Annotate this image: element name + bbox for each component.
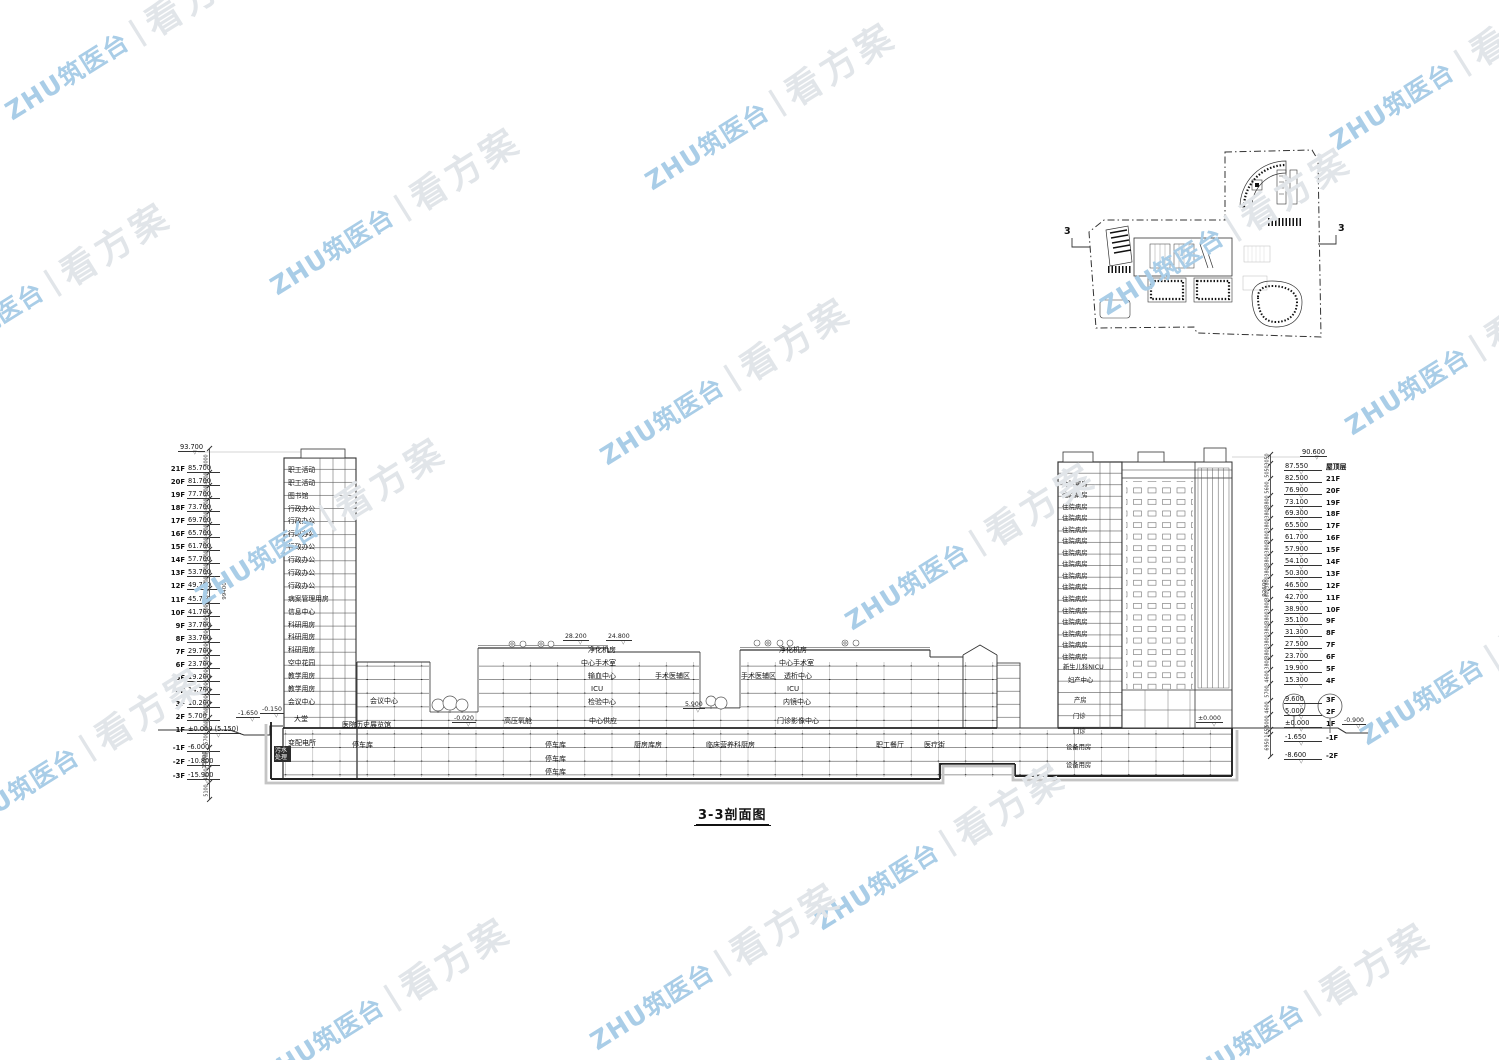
dimension-value: 4000 <box>205 512 210 524</box>
room-label: 住院病房 <box>1062 591 1088 603</box>
room-label: 门诊 <box>1073 728 1086 736</box>
floor-label: 5F <box>1326 666 1335 673</box>
dimension-segment: 4000 <box>205 512 214 525</box>
room-name: 住院病房 <box>1062 573 1088 580</box>
dimension-segment: 4800 <box>205 768 214 783</box>
floor-label: 18F <box>163 505 185 512</box>
level-row: 5.0002F <box>1284 704 1346 716</box>
floor-label: -3F <box>163 773 185 780</box>
elevation-value: 77.700 <box>187 491 220 499</box>
dimension-value: 8000 <box>205 454 210 466</box>
floor-label: 6F <box>163 662 185 669</box>
elevation-value: 61.700 <box>187 543 220 551</box>
dimension-value: 4800 <box>205 769 210 781</box>
room-label: 住院病房 <box>1062 626 1088 638</box>
dimension-segment: 4000 <box>205 692 214 705</box>
right-dimension-bar: 3050505056003800380038003800380038003800… <box>1266 455 1275 756</box>
dimension-value: 3800 <box>1266 518 1271 530</box>
room-label: 停车库 <box>545 741 566 749</box>
room-label: 职工活动 <box>288 474 329 487</box>
dimension-value: 4600 <box>1266 701 1271 713</box>
level-row: 4F14.700 <box>163 682 241 695</box>
level-row: 7F29.700 <box>163 643 241 656</box>
room-name: 行政办公 <box>288 530 315 538</box>
room-label: ICU <box>787 685 799 693</box>
floor-label: 12F <box>163 583 185 590</box>
level-row: 13F53.700 <box>163 564 241 577</box>
elevation-tag: -0.020 <box>452 715 476 723</box>
dimension-segment: 3800 <box>1266 542 1275 554</box>
dimension-value: 3800 <box>1266 600 1271 612</box>
dimension-segment: 4000 <box>205 628 214 641</box>
dimension-segment: 5050 <box>1266 464 1275 479</box>
room-name: 行政办公 <box>288 569 315 577</box>
elevation-value: 5.700 <box>187 713 220 721</box>
floor-label: 10F <box>163 610 185 617</box>
room-name: 行政办公 <box>288 505 315 513</box>
dimension-segment: 3050 <box>1266 455 1275 464</box>
dimension-segment: 4600 <box>1266 670 1275 684</box>
room-label: 住院病房 <box>1062 488 1088 500</box>
room-name: 行政办公 <box>288 543 315 551</box>
room-label: 行政办公 <box>288 513 329 526</box>
level-row: 69.30018F <box>1284 507 1346 519</box>
level-row: 82.50021F <box>1284 471 1346 483</box>
elevation-value: -8.600 <box>1284 752 1322 760</box>
room-label: 行政办公 <box>288 551 329 564</box>
room-label: 高压氧舱 <box>504 717 532 725</box>
room-label: ICU <box>591 685 603 693</box>
floor-label: 4F <box>1326 678 1335 685</box>
room-label: 行政办公 <box>288 538 329 551</box>
room-name: 住院病房 <box>1062 584 1088 591</box>
room-label: 会议中心 <box>288 693 329 706</box>
dimension-value: 3800 <box>1266 646 1271 658</box>
room-label: 行政办公 <box>288 500 329 513</box>
room-name: 病案管理用房 <box>288 595 329 603</box>
floor-label: 16F <box>1326 535 1340 542</box>
room-label: 新生儿科NICU <box>1063 664 1104 672</box>
room-name: 行政办公 <box>288 582 315 590</box>
level-row: 35.1009F <box>1284 614 1346 626</box>
room-label: 设备用房 <box>1066 762 1091 770</box>
dimension-segment: 4000 <box>205 473 214 486</box>
room-name: 空中花园 <box>288 659 315 667</box>
dimension-segment: 5700 <box>1266 684 1275 701</box>
room-label: 会议中心 <box>370 697 398 705</box>
floor-label: 17F <box>1326 523 1340 530</box>
level-row: 1F±0.000 (5.150) <box>163 721 241 734</box>
floor-label: 12F <box>1326 583 1340 590</box>
room-label: 科研用房 <box>288 641 329 654</box>
room-label: 住院病房 <box>1062 557 1088 569</box>
level-row: 3F10.200 <box>163 695 241 708</box>
room-label: 科研用房 <box>288 616 329 629</box>
elevation-value: 9.600 <box>1284 696 1322 704</box>
dimension-value: 4000 <box>205 692 210 704</box>
room-name: 住院病房 <box>1062 654 1088 661</box>
level-row: 61.70016F <box>1284 530 1346 542</box>
elevation-value: 87.550 <box>1284 463 1322 471</box>
dimension-value: 4000 <box>205 486 210 498</box>
floor-label: 4F <box>163 688 185 695</box>
dimension-segment: 4000 <box>205 653 214 666</box>
level-row: 42.70011F <box>1284 590 1346 602</box>
floor-label: 13F <box>163 570 185 577</box>
room-label: 输血中心 <box>588 672 616 680</box>
room-label: 停车库 <box>545 755 566 763</box>
level-row: 73.10019F <box>1284 495 1346 507</box>
floor-label: 1F <box>163 727 185 734</box>
room-label: 住院病房 <box>1062 545 1088 557</box>
room-name: 住院病房 <box>1062 527 1088 534</box>
room-name: 科研用房 <box>288 633 315 641</box>
dimension-value: 3800 <box>1266 623 1271 635</box>
level-row: 17F69.700 <box>163 512 241 525</box>
level-row: 10F41.700 <box>163 604 241 617</box>
floor-label: 21F <box>163 466 185 473</box>
dimension-value: 3800 <box>1266 542 1271 554</box>
dimension-segment: 4000 <box>205 486 214 499</box>
level-row: 16F65.700 <box>163 525 241 538</box>
dimension-segment: 4000 <box>205 602 214 615</box>
dimension-value: 4000 <box>205 563 210 575</box>
level-row: 6F23.700 <box>163 656 241 669</box>
level-row: -1.650-1F <box>1284 731 1346 743</box>
floor-label: 18F <box>1326 511 1340 518</box>
dimension-segment: 4000 <box>205 576 214 589</box>
room-name: 信息中心 <box>288 608 315 616</box>
floor-label: -1F <box>163 745 185 752</box>
dimension-segment: 3800 <box>1266 635 1275 647</box>
level-row: 38.90010F <box>1284 602 1346 614</box>
level-row: ±0.0001F <box>1284 716 1346 728</box>
room-label: 住院病房 <box>1062 649 1088 661</box>
floor-label: 3F <box>1326 697 1335 704</box>
dimension-value: 4000 <box>205 640 210 652</box>
dimension-segment: 4000 <box>205 563 214 576</box>
elevation-value: 45.700 <box>187 596 220 604</box>
dimension-value: 4000 <box>205 550 210 562</box>
level-row: -8.600-2F <box>1284 748 1346 760</box>
room-label: 住院病房 <box>1062 615 1088 627</box>
elevation-value: 14.700 <box>187 687 220 695</box>
floor-label: 7F <box>163 649 185 656</box>
elevation-value: 57.900 <box>1284 546 1322 554</box>
level-row: 15F61.700 <box>163 538 241 551</box>
dimension-segment: 4000 <box>205 666 214 679</box>
elevation-value: 50.300 <box>1284 570 1322 578</box>
room-label: 住院病房 <box>1062 522 1088 534</box>
room-label: 净化机房 <box>588 646 616 654</box>
room-name: 行政办公 <box>288 556 315 564</box>
elevation-value: 65.700 <box>187 530 220 538</box>
elevation-value: 38.900 <box>1284 606 1322 614</box>
left-overall-dimension: 99400 <box>222 582 228 600</box>
dimension-segment: 4600 <box>1266 701 1275 715</box>
dimension-value: 4000 <box>205 628 210 640</box>
dimension-segment: 4000 <box>205 589 214 602</box>
floor-label: 2F <box>163 714 185 721</box>
elevation-value: 27.500 <box>1284 641 1322 649</box>
room-name: 职工活动 <box>288 466 315 474</box>
dimension-value: 4000 <box>205 602 210 614</box>
room-label: 中心手术室 <box>581 659 616 667</box>
drawing-title-text: 3-3剖面图 <box>696 808 769 826</box>
level-row: 8F33.700 <box>163 630 241 643</box>
room-label: 职工餐厅 <box>876 741 904 749</box>
room-name: 图书馆 <box>288 492 308 500</box>
elevation-value: 42.700 <box>1284 594 1322 602</box>
annotation-layer: 93.700 21F85.70020F81.70019F77.70018F73.… <box>0 0 1499 1060</box>
room-label: 空中花园 <box>288 654 329 667</box>
room-name: 住院病房 <box>1062 619 1088 626</box>
elevation-value: 73.700 <box>187 504 220 512</box>
floor-label: 20F <box>163 479 185 486</box>
room-label: 妇产中心 <box>1068 677 1093 685</box>
floor-label: 14F <box>1326 559 1340 566</box>
left-level-column: 21F85.70020F81.70019F77.70018F73.70017F6… <box>163 460 241 734</box>
room-name: 住院病房 <box>1062 631 1088 638</box>
level-row: 9.6003F <box>1284 692 1346 704</box>
room-label: 厨房库房 <box>634 741 662 749</box>
room-label: 住院病房 <box>1062 568 1088 580</box>
left-dimension-bar: 8000400040004000400040004000400040004000… <box>205 449 214 799</box>
floor-label: 1F <box>1326 721 1335 728</box>
room-label: 净化机房 <box>779 646 807 654</box>
level-row: 76.90020F <box>1284 483 1346 495</box>
dimension-segment: 5600 <box>1266 479 1275 496</box>
dimension-segment: 4000 <box>205 550 214 563</box>
elevation-value: 29.700 <box>187 648 220 656</box>
elevation-value: 53.700 <box>187 569 220 577</box>
level-row: 12F49.700 <box>163 577 241 590</box>
elevation-value: 33.700 <box>187 635 220 643</box>
dimension-segment: 4000 <box>205 537 214 550</box>
floor-label: 13F <box>1326 571 1340 578</box>
site-plan-section-mark: 3 <box>1338 223 1345 234</box>
dimension-segment: 6950 <box>1266 735 1275 756</box>
elevation-value: 82.500 <box>1284 475 1322 483</box>
elevation-value: 41.700 <box>187 609 220 617</box>
elevation-value: 19.200 <box>187 674 220 682</box>
elevation-value: 23.700 <box>187 661 220 669</box>
floor-label: 6F <box>1326 654 1335 661</box>
room-label: 门诊影像中心 <box>777 717 819 725</box>
room-label: 污水处理 <box>274 746 291 762</box>
dimension-segment: 5700 <box>205 731 214 748</box>
room-name: 住院病房 <box>1062 504 1088 511</box>
level-row: 23.7006F <box>1284 649 1346 661</box>
dimension-value: 5100 <box>205 784 210 796</box>
room-label: 临床营养科厨房 <box>706 741 755 749</box>
room-label: 职工活动 <box>288 461 329 474</box>
elevation-tag: 5.900 <box>683 701 705 709</box>
floor-label: 14F <box>163 557 185 564</box>
site-plan-section-mark: 3 <box>1064 226 1071 237</box>
room-label: 住院病房 <box>1062 580 1088 592</box>
right-top-elevation: 90.600 <box>1300 448 1327 457</box>
left-tower-rooms: 职工活动职工活动图书馆行政办公行政办公行政办公行政办公行政办公行政办公行政办公病… <box>288 461 329 706</box>
room-name: 住院病房 <box>1062 608 1088 615</box>
elevation-value: 54.100 <box>1284 558 1322 566</box>
room-label: 停车库 <box>545 768 566 776</box>
floor-label: -2F <box>163 759 185 766</box>
room-label: 内镜中心 <box>783 698 811 706</box>
room-label: 医疗街 <box>924 741 945 749</box>
level-row: 15.3004F <box>1284 673 1346 685</box>
dimension-segment: 4000 <box>205 615 214 628</box>
dimension-value: 4000 <box>205 524 210 536</box>
room-label: 手术医辅区 <box>741 672 776 680</box>
floor-label: 10F <box>1326 607 1340 614</box>
room-name: 住院病房 <box>1062 596 1088 603</box>
dimension-value: 3800 <box>1266 530 1271 542</box>
right-level-column: 87.550屋顶层82.50021F76.90020F73.10019F69.3… <box>1284 459 1346 760</box>
floor-label: 15F <box>1326 547 1340 554</box>
elevation-value: -15.900 <box>187 772 220 780</box>
dimension-segment: 4000 <box>205 718 214 731</box>
level-row: 19F77.700 <box>163 486 241 499</box>
dimension-value: 4000 <box>205 666 210 678</box>
drawing-title: 3-3剖面图 <box>694 804 771 826</box>
elevation-value: 73.100 <box>1284 499 1322 507</box>
level-row: 5F19.200 <box>163 669 241 682</box>
room-name: 住院病房 <box>1062 492 1088 499</box>
dimension-value: 4000 <box>205 653 210 665</box>
drawing-canvas: ZHU筑医台|看方案 ZHU筑医台|看方案 ZHU筑医台|看方案 ZHU筑医台|… <box>0 0 1499 1060</box>
room-label: 透析中心 <box>784 672 812 680</box>
room-label: 住院病房 <box>1062 638 1088 650</box>
room-name: 教学用房 <box>288 672 315 680</box>
dimension-segment: 3800 <box>1266 519 1275 531</box>
dimension-value: 4000 <box>205 473 210 485</box>
room-name: 行政办公 <box>288 517 315 525</box>
room-label: 变配电所 <box>288 739 316 747</box>
elevation-value: -1.650 <box>1284 734 1322 742</box>
elevation-tag: 28.200 <box>563 633 589 641</box>
room-label: 中心供应 <box>589 717 617 725</box>
room-name: 职工活动 <box>288 479 315 487</box>
level-row: 46.50012F <box>1284 578 1346 590</box>
floor-label: 16F <box>163 531 185 538</box>
dimension-value: 4000 <box>205 679 210 691</box>
dimension-segment: 4000 <box>205 525 214 538</box>
floor-label: 20F <box>1326 488 1340 495</box>
elevation-tag: -1.650 <box>236 710 260 718</box>
room-label: 产房 <box>1074 697 1087 705</box>
elevation-value: 35.100 <box>1284 617 1322 625</box>
room-label: 住院病房 <box>1062 499 1088 511</box>
level-row: 18F73.700 <box>163 499 241 512</box>
level-row: 9F37.700 <box>163 617 241 630</box>
left-lower-overall-dimension: 15900 <box>202 751 208 769</box>
dimension-value: 4000 <box>205 576 210 588</box>
dimension-value: 4000 <box>205 499 210 511</box>
elevation-value: 57.700 <box>187 556 220 564</box>
dimension-segment: 4000 <box>205 641 214 654</box>
floor-label: 2F <box>1326 709 1335 716</box>
room-label: 设备用房 <box>1066 744 1091 752</box>
dimension-value: 4000 <box>205 589 210 601</box>
room-name: 科研用房 <box>288 621 315 629</box>
room-label: 住院病房 <box>1062 511 1088 523</box>
room-name: 会议中心 <box>288 698 315 706</box>
level-row: 19.9005F <box>1284 661 1346 673</box>
elevation-value: 65.500 <box>1284 522 1322 530</box>
room-label: 教学用房 <box>288 667 329 680</box>
room-label: 手术医辅区 <box>655 672 690 680</box>
level-row: 14F57.700 <box>163 551 241 564</box>
room-label: 中心手术室 <box>779 659 814 667</box>
floor-label: 8F <box>163 636 185 643</box>
room-label: 图书馆 <box>288 487 329 500</box>
room-name: 住院病房 <box>1062 550 1088 557</box>
elevation-value: 23.700 <box>1284 653 1322 661</box>
level-row: 50.30013F <box>1284 566 1346 578</box>
dimension-value: 4000 <box>205 615 210 627</box>
room-label: 教学用房 <box>288 680 329 693</box>
elevation-value: ±0.000 <box>1284 720 1322 728</box>
room-label: 行政办公 <box>288 577 329 590</box>
level-row: 31.3008F <box>1284 625 1346 637</box>
room-label: 行政办公 <box>288 525 329 538</box>
floor-label: 21F <box>1326 476 1340 483</box>
elevation-value: 69.700 <box>187 517 220 525</box>
dimension-segment: 3800 <box>1266 658 1275 670</box>
dimension-value: 5700 <box>205 733 210 745</box>
room-label: 信息中心 <box>288 603 329 616</box>
room-label: 医院历史展览馆 <box>342 721 391 729</box>
elevation-tag: 24.800 <box>606 633 632 641</box>
room-name: 教学用房 <box>288 685 315 693</box>
dimension-value: 5050 <box>1266 465 1271 477</box>
dimension-segment: 3800 <box>1266 624 1275 636</box>
level-row: 54.10014F <box>1284 554 1346 566</box>
room-label: 门诊 <box>1073 713 1086 721</box>
level-row: 11F45.700 <box>163 590 241 603</box>
dimension-value: 3800 <box>1266 634 1271 646</box>
dimension-value: 4600 <box>1266 670 1271 682</box>
level-row: 21F85.700 <box>163 460 241 473</box>
floor-label: 5F <box>163 675 185 682</box>
elevation-value: 85.700 <box>187 465 220 473</box>
dimension-segment: 8000 <box>205 449 214 473</box>
dimension-segment: 5100 <box>205 783 214 799</box>
elevation-value: 46.500 <box>1284 582 1322 590</box>
right-tower-wards: 住院病房住院病房住院病房住院病房住院病房住院病房住院病房住院病房住院病房住院病房… <box>1062 476 1088 661</box>
floor-label: 3F <box>163 701 185 708</box>
floor-label: 9F <box>163 623 185 630</box>
floor-label: 11F <box>1326 595 1340 602</box>
room-name: 住院病房 <box>1062 561 1088 568</box>
level-row: 2F5.700 <box>163 708 241 721</box>
elevation-value: 31.300 <box>1284 629 1322 637</box>
dimension-segment: 4000 <box>205 705 214 718</box>
elevation-tag: ±0.000 <box>1196 715 1223 723</box>
elevation-value: 19.900 <box>1284 665 1322 673</box>
floor-label: 19F <box>163 492 185 499</box>
floor-label: 屋顶层 <box>1326 464 1346 471</box>
dimension-value: 5600 <box>1266 481 1271 493</box>
room-name: 住院病房 <box>1062 481 1088 488</box>
dimension-value: 6950 <box>1266 739 1271 751</box>
floor-label: 19F <box>1326 500 1340 507</box>
elevation-value: 69.300 <box>1284 510 1322 518</box>
elevation-tag: -0.150 <box>260 706 284 714</box>
floor-label: -1F <box>1326 735 1338 742</box>
room-label: 住院病房 <box>1062 603 1088 615</box>
